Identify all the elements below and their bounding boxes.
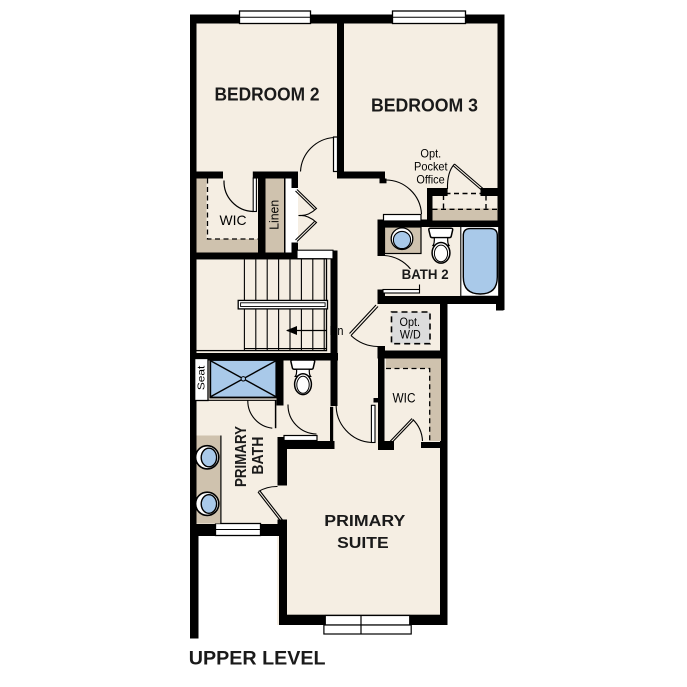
svg-text:Seat: Seat — [197, 365, 208, 390]
svg-text:Pocket: Pocket — [414, 160, 448, 174]
svg-text:BATH 2: BATH 2 — [402, 266, 449, 282]
svg-text:Office: Office — [416, 173, 445, 187]
svg-text:Linen: Linen — [267, 200, 281, 230]
svg-text:Opt.: Opt. — [400, 315, 421, 329]
svg-text:Dn: Dn — [330, 323, 344, 338]
svg-text:Opt.: Opt. — [420, 147, 441, 161]
svg-text:PRIMARY: PRIMARY — [324, 513, 405, 530]
svg-text:WIC: WIC — [393, 391, 416, 406]
svg-text:UPPER LEVEL: UPPER LEVEL — [189, 649, 326, 670]
svg-text:PRIMARY: PRIMARY — [233, 425, 250, 487]
svg-text:BEDROOM 2: BEDROOM 2 — [215, 85, 320, 105]
svg-text:BATH: BATH — [250, 437, 267, 475]
svg-text:SUITE: SUITE — [337, 535, 389, 552]
svg-text:WIC: WIC — [220, 212, 247, 228]
svg-text:W/D: W/D — [400, 328, 421, 342]
svg-text:BEDROOM 3: BEDROOM 3 — [371, 96, 478, 116]
